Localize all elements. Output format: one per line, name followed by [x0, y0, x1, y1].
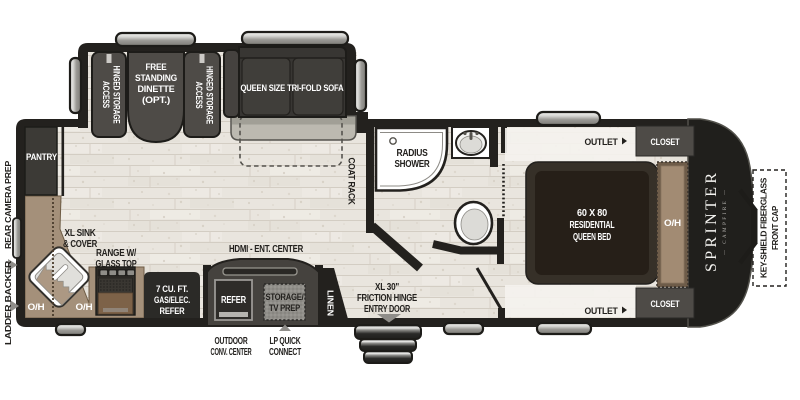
svg-text:RESIDENTIAL: RESIDENTIAL [570, 220, 615, 231]
svg-text:& COVER: & COVER [63, 239, 97, 250]
svg-text:CLOSET: CLOSET [651, 299, 680, 310]
svg-text:HINGED STORAGE: HINGED STORAGE [205, 66, 215, 124]
svg-text:DINETTE: DINETTE [138, 84, 175, 94]
svg-text:HINGED STORAGE: HINGED STORAGE [112, 66, 122, 124]
svg-text:FRONT CAP: FRONT CAP [770, 205, 780, 250]
svg-text:(OPT.): (OPT.) [142, 95, 170, 105]
svg-text:HDMI - ENT. CENTER: HDMI - ENT. CENTER [229, 244, 303, 255]
svg-text:GAS/ELEC.: GAS/ELEC. [154, 295, 190, 305]
svg-text:O/H: O/H [664, 218, 681, 229]
svg-text:XL SINK: XL SINK [65, 228, 96, 239]
svg-text:O/H: O/H [76, 302, 94, 312]
svg-text:O/H: O/H [28, 302, 46, 312]
svg-text:QUEEN BED: QUEEN BED [573, 232, 611, 243]
svg-text:ENTRY DOOR: ENTRY DOOR [364, 304, 410, 315]
svg-text:STANDING: STANDING [135, 73, 177, 83]
svg-text:LINEN: LINEN [326, 290, 336, 316]
svg-text:LADDER BACKER: LADDER BACKER [3, 260, 13, 345]
svg-text:FRICTION HINGE: FRICTION HINGE [357, 293, 418, 304]
svg-text:XL 30": XL 30" [375, 282, 399, 293]
svg-text:CONNECT: CONNECT [269, 347, 301, 358]
svg-text:REAR CAMERA PREP: REAR CAMERA PREP [3, 160, 13, 249]
svg-text:OUTLET: OUTLET [585, 137, 618, 148]
svg-text:KEY-SHIELD FIBERGLASS: KEY-SHIELD FIBERGLASS [759, 177, 769, 278]
svg-text:FREE: FREE [146, 62, 167, 72]
svg-text:CONV. CENTER: CONV. CENTER [211, 347, 252, 358]
svg-text:SHOWER: SHOWER [395, 159, 430, 170]
svg-text:CLOSET: CLOSET [651, 137, 680, 148]
svg-text:— CAMPFIRE —: — CAMPFIRE — [723, 189, 728, 256]
svg-text:PANTRY: PANTRY [26, 152, 58, 163]
svg-text:OUTDOOR: OUTDOOR [215, 336, 248, 347]
svg-text:7 CU. FT.: 7 CU. FT. [156, 284, 188, 294]
svg-text:OUTLET: OUTLET [585, 306, 618, 317]
svg-text:RADIUS: RADIUS [397, 148, 429, 159]
svg-text:SPRINTER: SPRINTER [703, 170, 720, 272]
svg-text:COAT RACK: COAT RACK [347, 158, 357, 206]
svg-text:ACCESS: ACCESS [194, 82, 204, 109]
svg-text:TV PREP: TV PREP [269, 303, 300, 313]
svg-text:ACCESS: ACCESS [101, 81, 111, 108]
svg-text:RANGE W/: RANGE W/ [96, 248, 136, 259]
svg-text:QUEEN SIZE TRI-FOLD SOFA: QUEEN SIZE TRI-FOLD SOFA [241, 83, 344, 94]
svg-text:REFER: REFER [160, 306, 186, 316]
svg-text:60 X 80: 60 X 80 [577, 208, 608, 219]
svg-text:LP QUICK: LP QUICK [270, 336, 301, 347]
svg-text:REFER: REFER [221, 295, 247, 306]
svg-text:STORAGE/: STORAGE/ [266, 292, 305, 302]
svg-text:GLASS TOP: GLASS TOP [96, 259, 138, 270]
